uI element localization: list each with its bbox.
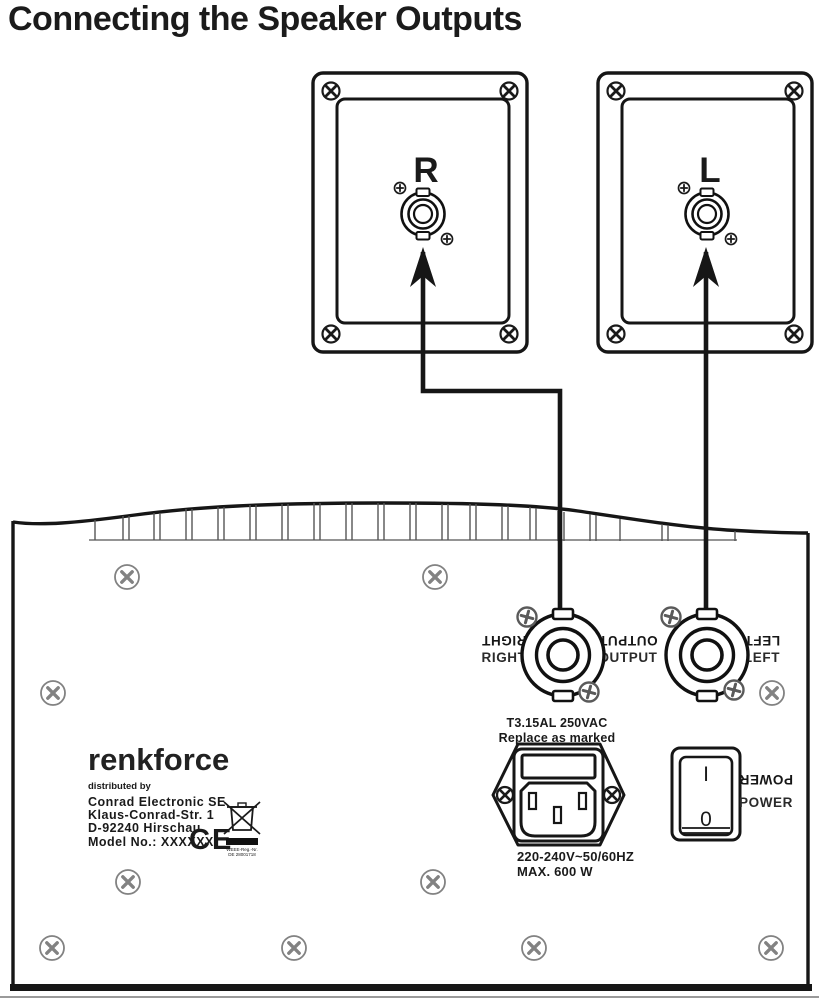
switch-on-symbol: I [703, 763, 709, 786]
phillips-screw-icon [395, 183, 406, 194]
phillips-screw-icon [662, 608, 681, 627]
fuse-rating-label: T3.15AL 250VAC [507, 716, 608, 730]
right-speaker-panel: R [313, 73, 527, 352]
corner-screw-icon [323, 83, 340, 100]
address-city: D-92240 Hirschau [88, 821, 201, 835]
right-speaker-cable [423, 252, 560, 612]
output-label-mirrored: OUTPUT [598, 633, 657, 648]
corner-screw-icon [608, 326, 625, 343]
speaker-cables [410, 247, 719, 616]
left-channel-label-mirrored: LEFT [744, 633, 780, 648]
branding-block: renkforce distributed by Conrad Electron… [88, 742, 260, 857]
left-speaker-connector [679, 183, 737, 245]
phillips-screw-icon [679, 183, 690, 194]
iec-socket [521, 783, 595, 836]
phillips-screw-icon [580, 683, 599, 702]
voltage-spec-label: 220-240V~50/60HZ [517, 849, 634, 864]
weee-reg-line2: DE 28001718 [228, 852, 256, 857]
panel-screw-icon [115, 565, 139, 589]
phillips-screw-icon [726, 234, 737, 245]
corner-screw-icon [501, 326, 518, 343]
power-label-mirrored: POWER [739, 772, 793, 787]
phillips-screw-icon [442, 234, 453, 245]
socket-pin-earth [554, 807, 561, 823]
max-power-label: MAX. 600 W [517, 864, 593, 879]
inlet-body [514, 749, 603, 841]
corner-screw-icon [786, 83, 803, 100]
manual-page: Connecting the Speaker Outputs [0, 0, 819, 1000]
weee-bin-icon: WEEE-Reg.-Nr. DE 28001718 [224, 802, 260, 857]
panel-screw-icon [282, 936, 306, 960]
distributed-by-label: distributed by [88, 781, 152, 792]
power-switch: I 0 POWER POWER [672, 748, 793, 840]
panel-screw-icon [116, 870, 140, 894]
amp-bottom-edge [10, 984, 812, 991]
panel-screw-icon [421, 870, 445, 894]
speaker-wiring-diagram: R L [0, 0, 819, 1000]
phillips-screw-icon [518, 608, 537, 627]
right-speaker-connector [395, 183, 453, 245]
left-output-connector [662, 608, 749, 702]
power-inlet: T3.15AL 250VAC Replace as marked 220-240… [493, 716, 634, 879]
panel-screw-icon [41, 681, 65, 705]
corner-screw-icon [501, 83, 518, 100]
corner-screw-icon [786, 326, 803, 343]
brand-logo: renkforce [88, 742, 229, 777]
panel-screw-icon [423, 565, 447, 589]
fuse-drawer [522, 755, 595, 778]
address-street: Klaus-Conrad-Str. 1 [88, 808, 214, 822]
right-speaker-label: R [413, 151, 438, 190]
panel-screw-icon [522, 936, 546, 960]
right-channel-label: RIGHT [482, 650, 527, 665]
panel-screw-icon [759, 936, 783, 960]
output-label: OUTPUT [598, 650, 657, 665]
panel-screw-icon [760, 681, 784, 705]
power-label: POWER [739, 795, 793, 810]
company-name: Conrad Electronic SE [88, 795, 226, 809]
right-output-connector [518, 608, 605, 702]
left-speaker-label: L [699, 151, 720, 190]
corner-screw-icon [608, 83, 625, 100]
corner-screw-icon [323, 326, 340, 343]
amplifier-rear-panel: renkforce distributed by Conrad Electron… [0, 503, 819, 997]
inlet-screw-icon [497, 787, 513, 803]
inlet-screw-icon [604, 787, 620, 803]
phillips-screw-icon [725, 681, 744, 700]
socket-pin-right [579, 793, 586, 809]
panel-screw-icon [40, 936, 64, 960]
socket-pin-left [529, 793, 536, 809]
right-channel-label-mirrored: RIGHT [481, 633, 526, 648]
